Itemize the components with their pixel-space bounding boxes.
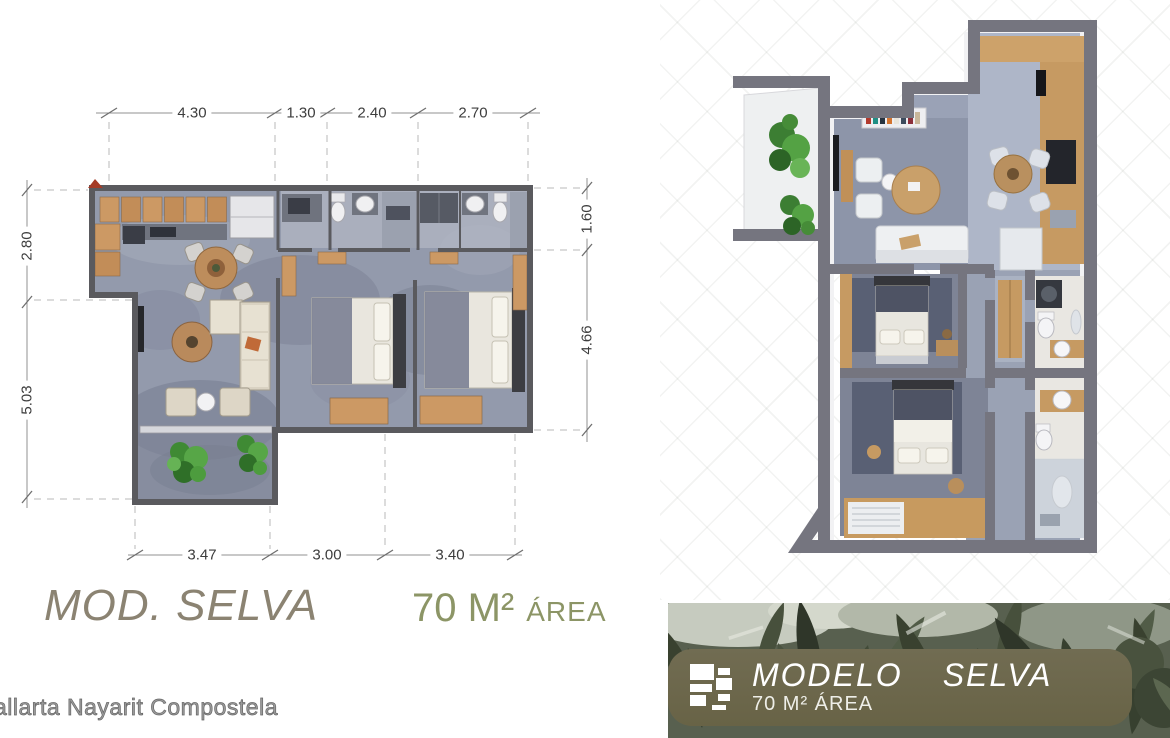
hallway-3d	[995, 276, 1025, 362]
watermark-text: allarta Nayarit Compostela	[0, 694, 278, 721]
banner-name-word: SELVA	[943, 657, 1053, 693]
dim-right-2: 4.66	[579, 320, 596, 359]
dim-top-2: 1.30	[281, 105, 320, 122]
dim-bottom-2: 3.00	[307, 547, 346, 564]
banner-texts: MODELOSELVA 70 M² ÁREA	[752, 659, 1052, 717]
area-value: 70 M²	[412, 586, 514, 631]
brochure-page: 4.30 1.30 2.40 2.70 2.80 5.03 1.60 4.66 …	[0, 0, 1170, 738]
banner-model-word: MODELO	[752, 657, 903, 693]
banner-pill: MODELOSELVA 70 M² ÁREA	[668, 649, 1132, 726]
bedroom-2-3d	[840, 378, 988, 538]
planks-logo-icon	[688, 664, 734, 712]
dim-left-1: 2.80	[19, 226, 36, 265]
bathroom-1-3d	[1035, 276, 1084, 370]
model-banner: MODELOSELVA 70 M² ÁREA	[668, 603, 1170, 738]
dim-right-1: 1.60	[579, 199, 596, 238]
north-marker	[88, 179, 103, 188]
dim-top-3: 2.40	[352, 105, 391, 122]
bathroom-2-3d	[1035, 378, 1084, 538]
banner-area-label: 70 M² ÁREA	[752, 693, 1052, 716]
area-label: ÁREA	[526, 596, 606, 628]
floorplan-2d: 4.30 1.30 2.40 2.70 2.80 5.03 1.60 4.66 …	[0, 0, 660, 600]
area-title: 70 M² ÁREA	[412, 586, 607, 631]
banner-title: MODELOSELVA	[752, 659, 1052, 693]
floorplan-3d-drawing	[660, 0, 1170, 600]
dim-bottom-3: 3.40	[430, 547, 469, 564]
floorplan-3d-render	[660, 0, 1170, 600]
dim-left-2: 5.03	[19, 380, 36, 419]
dim-top-4: 2.70	[453, 105, 492, 122]
floorplan-2d-drawing	[0, 0, 660, 600]
bedroom-1-3d	[840, 274, 966, 368]
model-title: MOD. SELVA	[44, 581, 318, 631]
dim-bottom-1: 3.47	[182, 547, 221, 564]
balcony-3d	[733, 76, 821, 241]
dim-top-1: 4.30	[172, 105, 211, 122]
